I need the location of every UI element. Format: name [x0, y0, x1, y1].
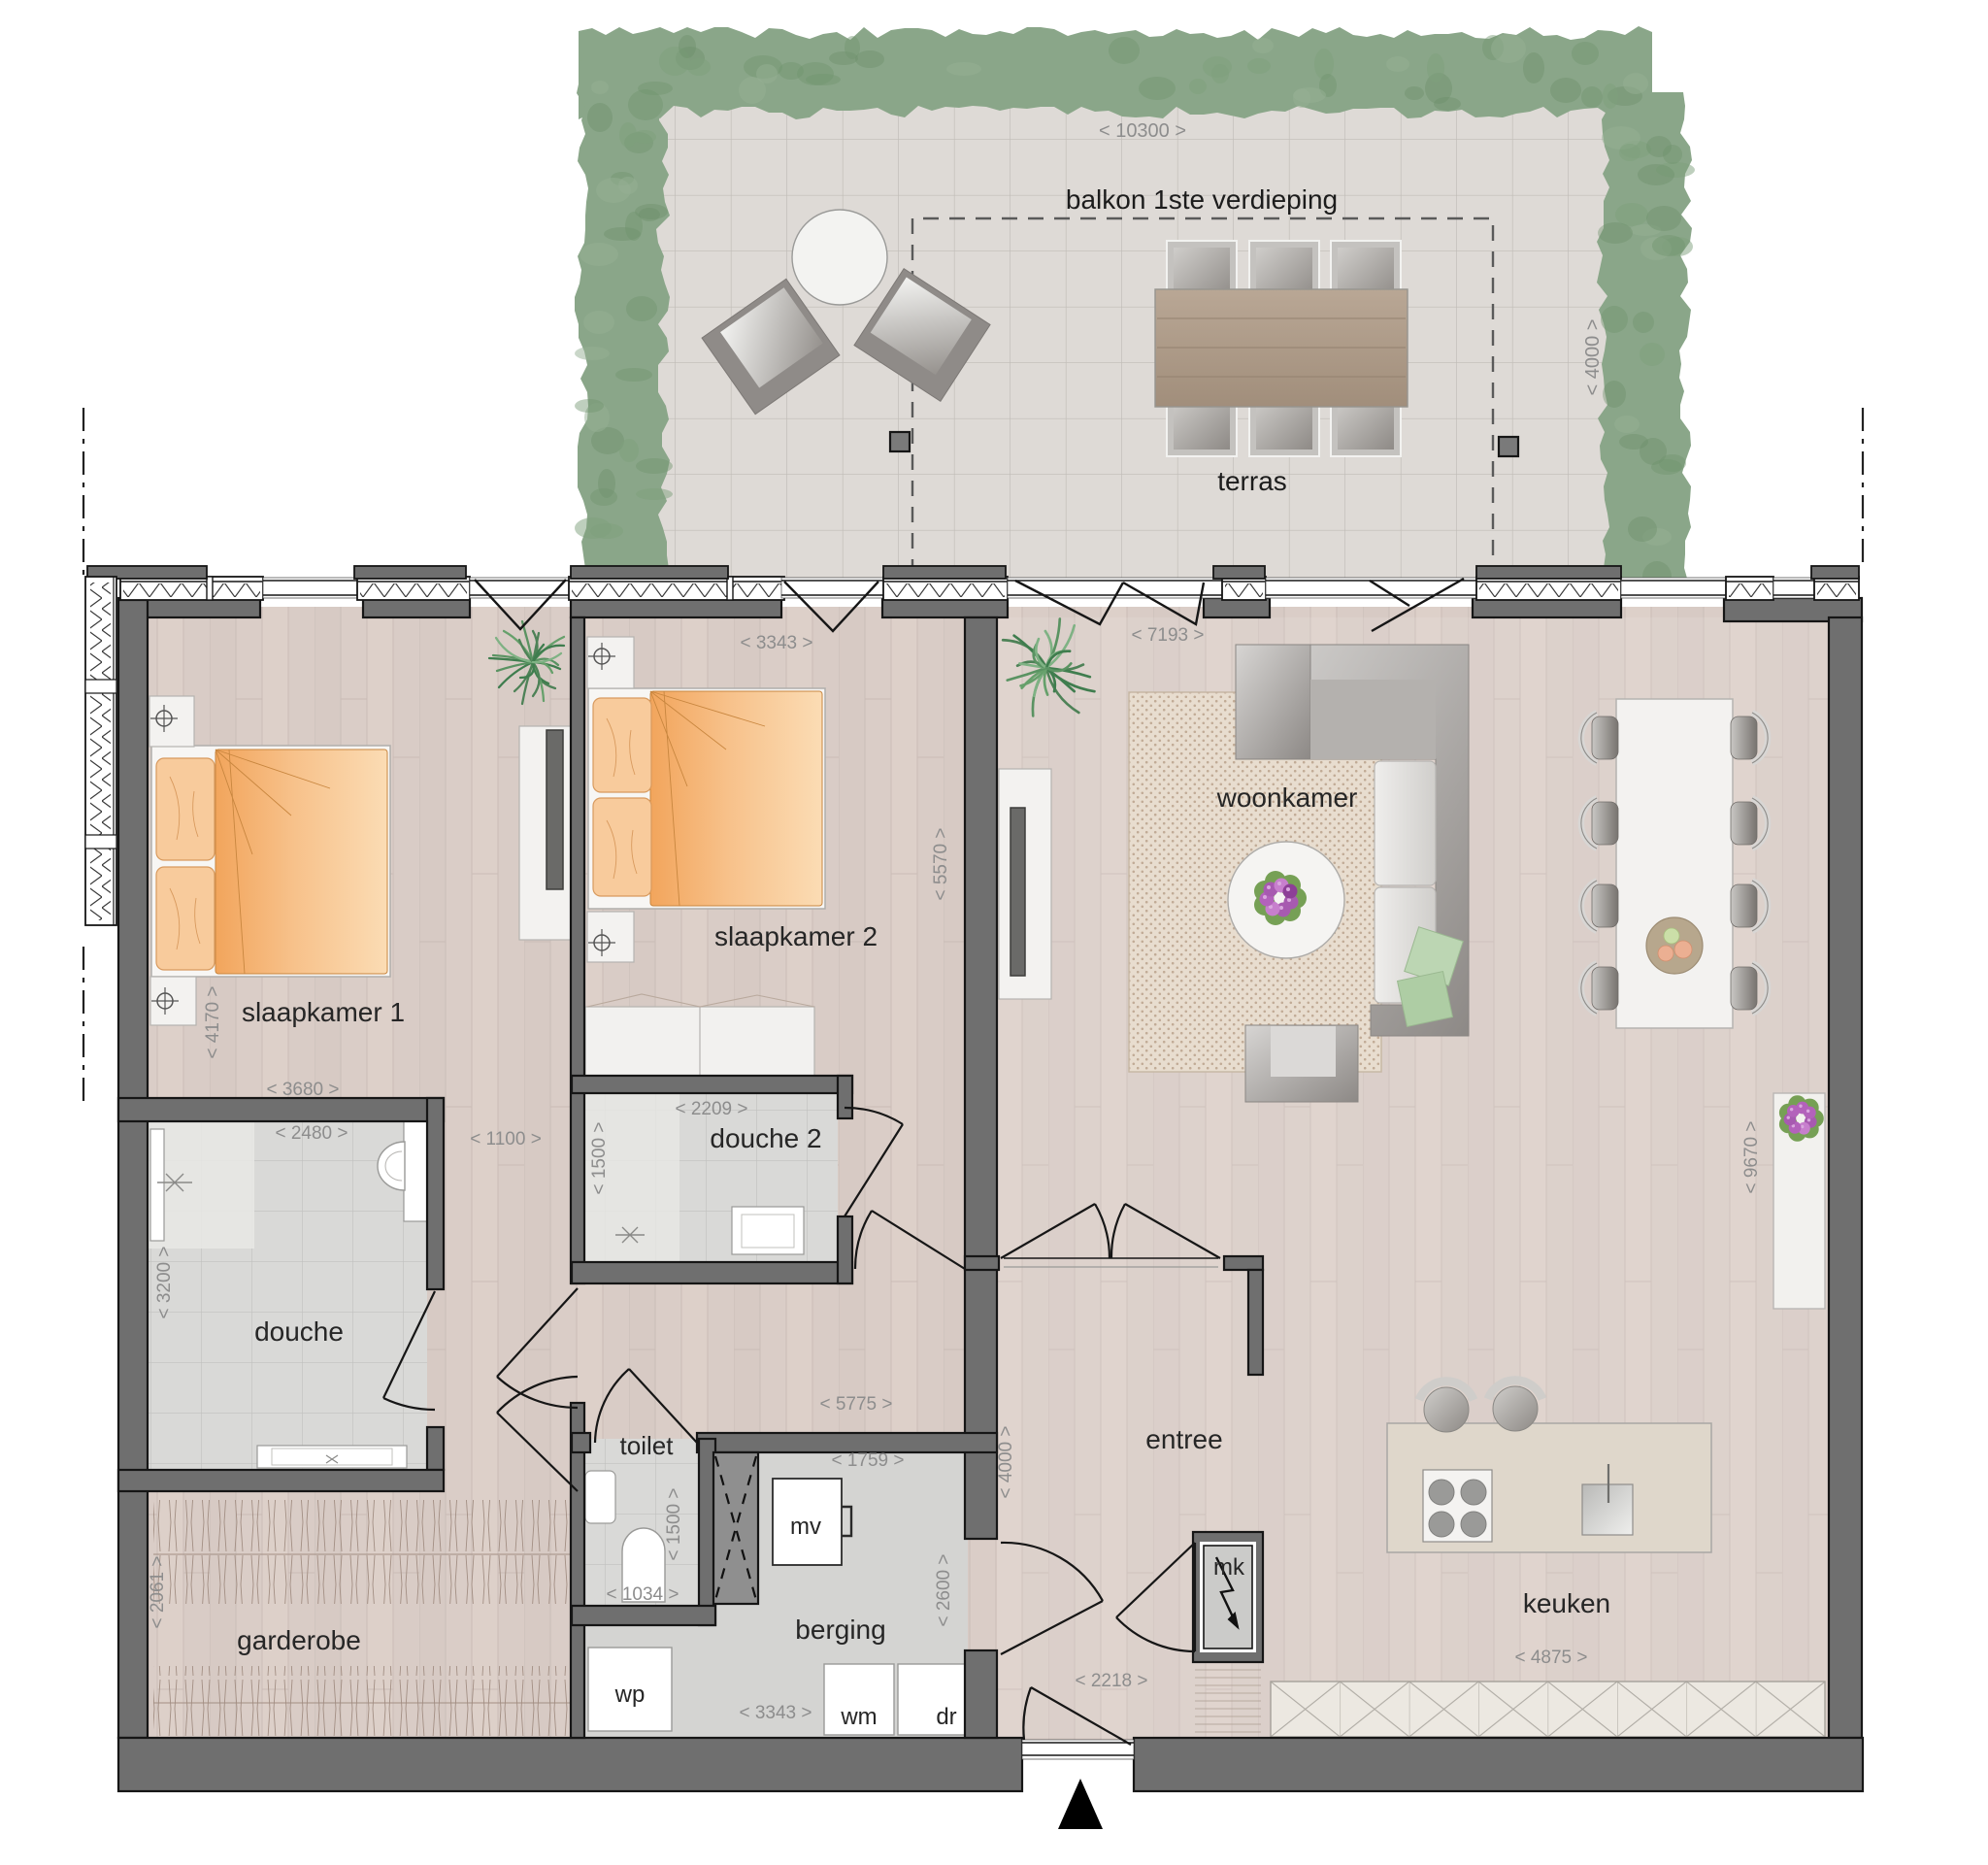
- svg-text:toilet: toilet: [620, 1431, 675, 1460]
- svg-text:< 1100 >: < 1100 >: [470, 1129, 542, 1149]
- svg-text:douche 2: douche 2: [710, 1123, 821, 1153]
- svg-text:< 5775 >: < 5775 >: [819, 1394, 892, 1415]
- svg-text:slaapkamer 2: slaapkamer 2: [714, 921, 878, 951]
- svg-text:< 4170 >: < 4170 >: [203, 985, 223, 1058]
- svg-text:< 3200 >: < 3200 >: [154, 1246, 175, 1318]
- svg-text:< 10300 >: < 10300 >: [1099, 120, 1186, 142]
- svg-text:woonkamer: woonkamer: [1216, 783, 1358, 813]
- svg-text:< 7193 >: < 7193 >: [1131, 625, 1204, 646]
- svg-text:< 9670 >: < 9670 >: [1741, 1120, 1762, 1193]
- svg-text:< 4000 >: < 4000 >: [996, 1425, 1016, 1498]
- svg-text:< 2209 >: < 2209 >: [675, 1099, 747, 1119]
- svg-text:< 4875 >: < 4875 >: [1514, 1648, 1587, 1668]
- svg-text:terras: terras: [1217, 466, 1287, 496]
- svg-text:balkon 1ste verdieping: balkon 1ste verdieping: [1066, 184, 1338, 215]
- svg-text:< 2061 >: < 2061 >: [148, 1555, 168, 1628]
- svg-text:wp: wp: [614, 1682, 646, 1708]
- svg-text:slaapkamer 1: slaapkamer 1: [242, 997, 405, 1027]
- svg-text:dr: dr: [936, 1704, 956, 1730]
- svg-text:< 3343 >: < 3343 >: [739, 1703, 812, 1723]
- svg-text:< 2600 >: < 2600 >: [934, 1553, 954, 1626]
- svg-text:berging: berging: [795, 1615, 885, 1645]
- svg-text:< 3343 >: < 3343 >: [740, 633, 812, 653]
- svg-text:< 2218 >: < 2218 >: [1075, 1671, 1147, 1691]
- svg-text:< 1759 >: < 1759 >: [831, 1450, 904, 1471]
- svg-text:mk: mk: [1213, 1554, 1245, 1581]
- svg-text:< 1500 >: < 1500 >: [664, 1487, 684, 1560]
- svg-text:< 3680 >: < 3680 >: [266, 1080, 339, 1100]
- svg-text:< 2480 >: < 2480 >: [275, 1123, 348, 1144]
- svg-text:< 1500 >: < 1500 >: [589, 1121, 610, 1194]
- svg-text:garderobe: garderobe: [237, 1625, 361, 1655]
- svg-text:douche: douche: [254, 1316, 344, 1347]
- svg-text:< 5570 >: < 5570 >: [931, 827, 951, 900]
- svg-text:keuken: keuken: [1523, 1588, 1610, 1618]
- svg-text:< 1034 >: < 1034 >: [606, 1584, 679, 1605]
- svg-text:mv: mv: [790, 1514, 821, 1540]
- svg-text:< 4000 >: < 4000 >: [1582, 319, 1604, 396]
- svg-text:wm: wm: [840, 1704, 877, 1730]
- svg-text:entree: entree: [1145, 1424, 1222, 1454]
